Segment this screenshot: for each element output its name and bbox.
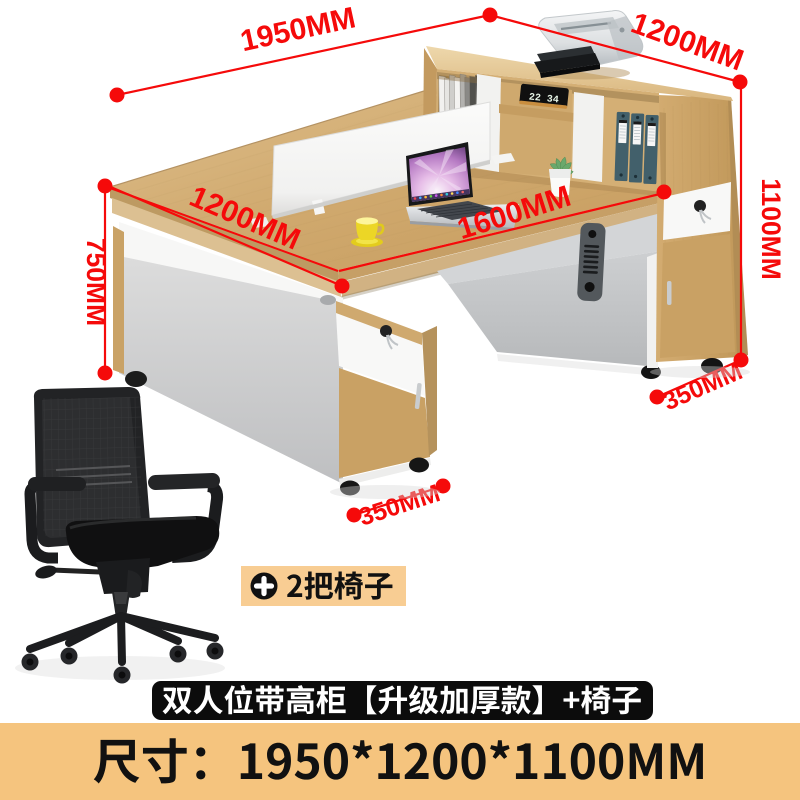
svg-text:1100MM: 1100MM bbox=[756, 178, 786, 280]
svg-text:750MM: 750MM bbox=[81, 238, 111, 326]
